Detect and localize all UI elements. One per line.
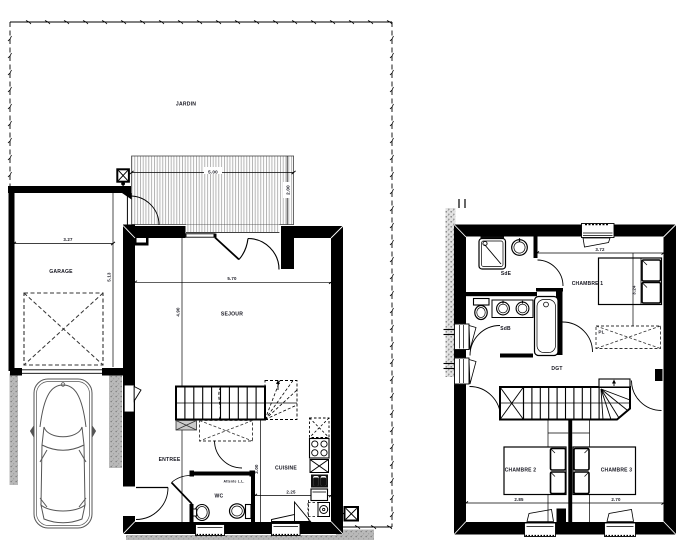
svg-text:ENTREE: ENTREE	[159, 457, 181, 463]
svg-text:2.70: 2.70	[611, 497, 621, 502]
svg-text:3.00: 3.00	[254, 464, 259, 474]
svg-text:5.13: 5.13	[107, 272, 112, 282]
svg-text:JARDIN: JARDIN	[176, 102, 196, 108]
svg-text:2.25: 2.25	[286, 490, 296, 495]
svg-text:SEJOUR: SEJOUR	[221, 312, 243, 318]
svg-text:5.70: 5.70	[227, 276, 237, 281]
svg-text:CHAMBRE 2: CHAMBRE 2	[505, 468, 537, 474]
svg-text:CHAMBRE 3: CHAMBRE 3	[601, 468, 633, 474]
svg-text:3.27: 3.27	[63, 237, 73, 242]
svg-text:Attente L.L.: Attente L.L.	[223, 480, 244, 484]
svg-text:2.85: 2.85	[514, 497, 524, 502]
svg-text:CUISINE: CUISINE	[275, 466, 297, 472]
svg-text:SdB: SdB	[500, 326, 511, 332]
svg-text:GARAGE: GARAGE	[49, 269, 73, 275]
svg-text:3.72: 3.72	[595, 247, 605, 252]
svg-text:5.00: 5.00	[208, 169, 218, 174]
svg-text:2.00: 2.00	[286, 185, 291, 195]
svg-text:DGT: DGT	[551, 366, 562, 372]
svg-text:SdE: SdE	[501, 271, 512, 277]
svg-text:3.24: 3.24	[632, 285, 637, 295]
svg-text:PL: PL	[598, 330, 604, 335]
svg-text:WC: WC	[215, 494, 224, 500]
svg-text:CHAMBRE 1: CHAMBRE 1	[572, 281, 604, 287]
svg-text:4.90: 4.90	[175, 307, 180, 317]
